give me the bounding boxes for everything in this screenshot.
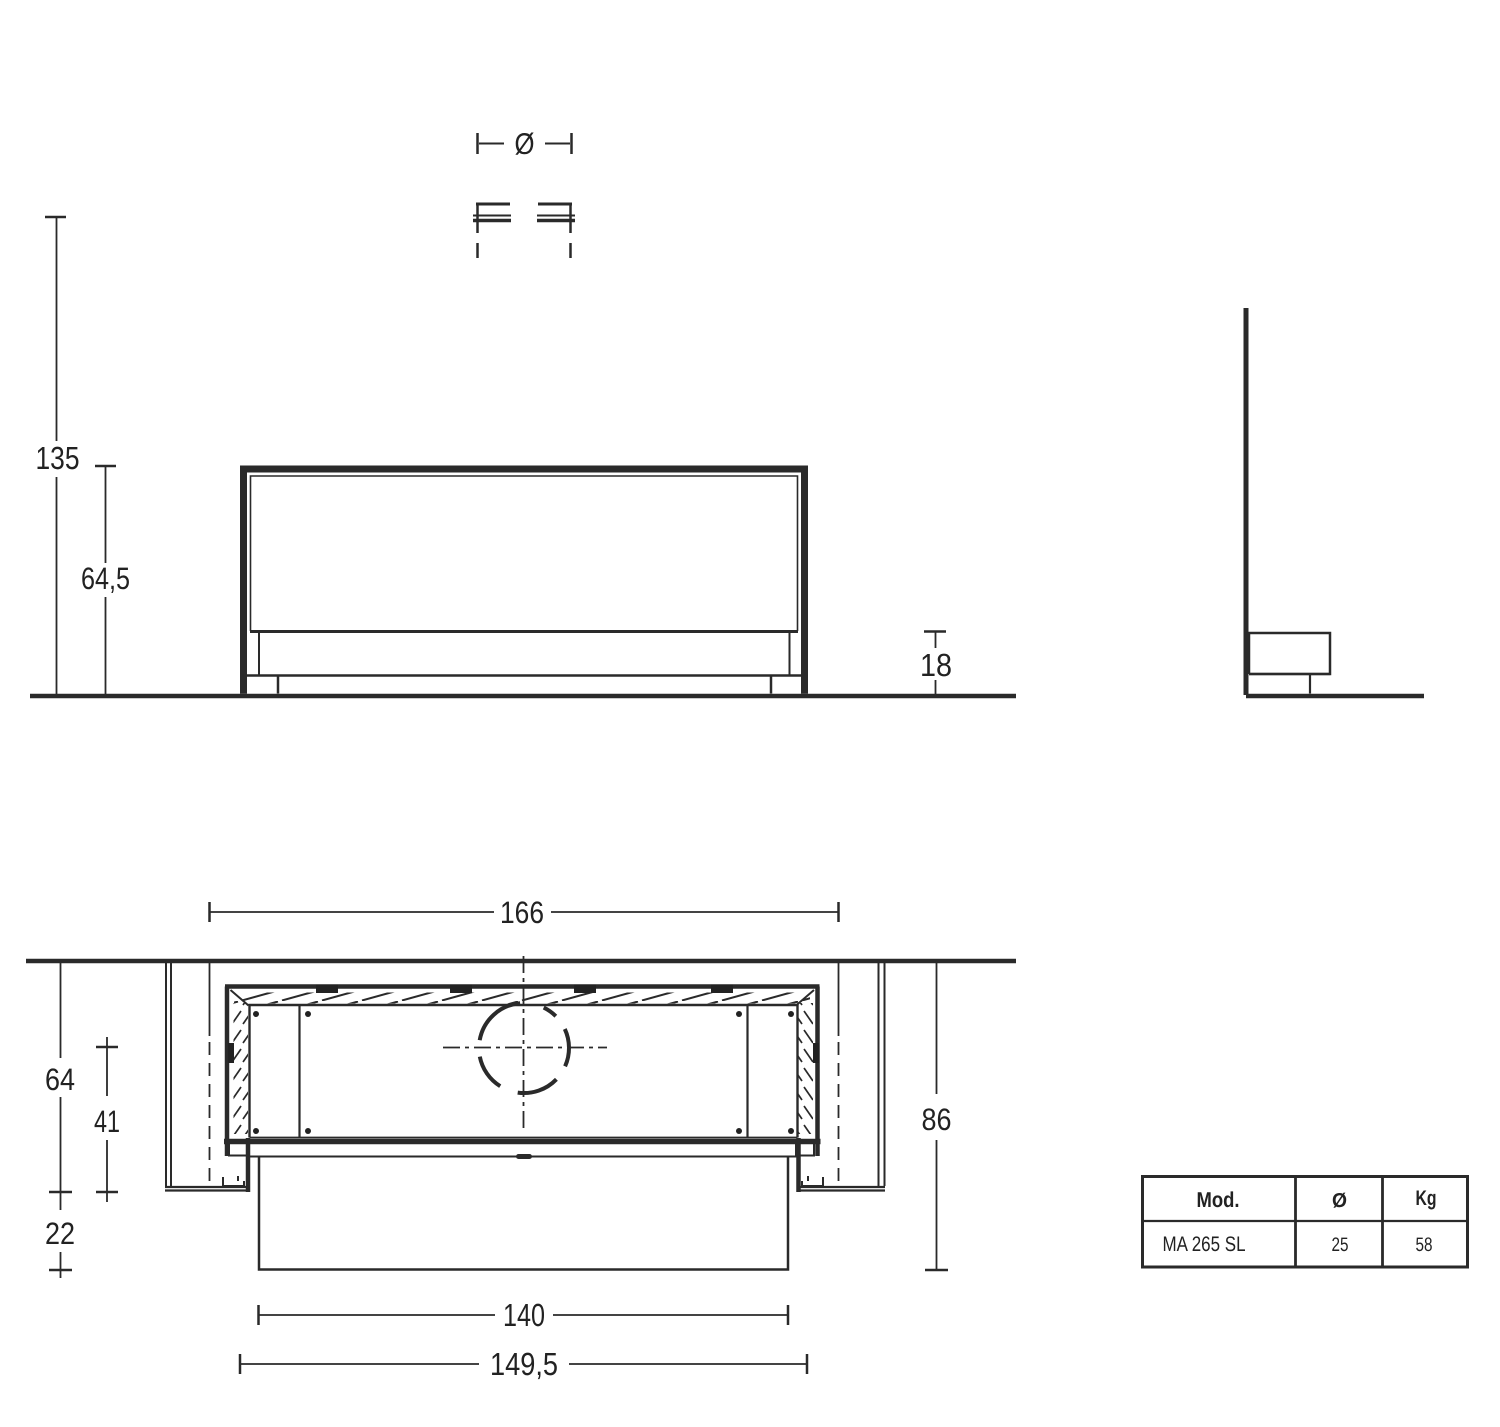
svg-text:58: 58 [1416,1234,1433,1256]
svg-text:64,5: 64,5 [81,561,130,596]
svg-text:41: 41 [94,1104,120,1139]
svg-text:Ø: Ø [515,128,535,161]
svg-text:86: 86 [922,1102,952,1137]
svg-text:25: 25 [1332,1234,1349,1256]
svg-text:149,5: 149,5 [490,1346,558,1382]
svg-text:Mod.: Mod. [1197,1188,1240,1212]
svg-text:MA 265 SL: MA 265 SL [1163,1233,1246,1256]
svg-text:18: 18 [920,647,952,683]
svg-text:166: 166 [500,895,544,930]
svg-text:Ø: Ø [1332,1190,1347,1212]
svg-text:140: 140 [503,1297,545,1333]
svg-text:135: 135 [36,440,80,476]
svg-text:Kg: Kg [1416,1187,1437,1210]
svg-text:22: 22 [45,1216,75,1251]
svg-text:64: 64 [45,1062,75,1097]
